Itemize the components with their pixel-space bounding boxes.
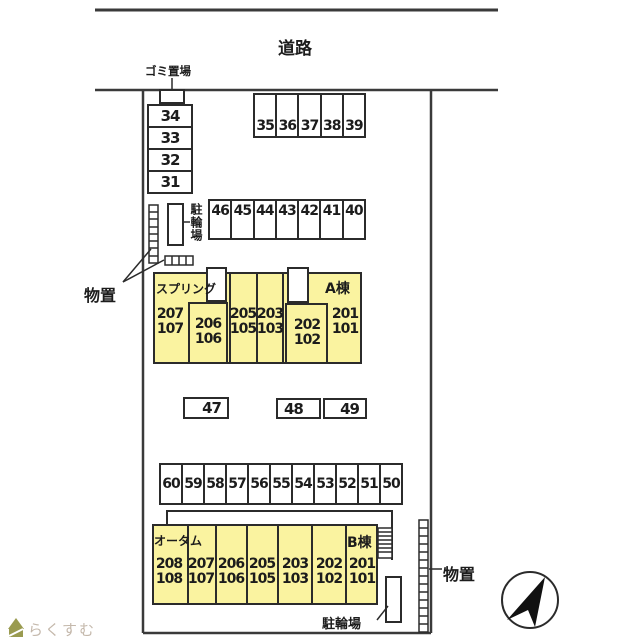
unit-lower: 103 (282, 572, 308, 587)
parking-row-46-40: 46 45 44 43 42 41 40 (208, 199, 366, 240)
building-a-name: スプリング (156, 280, 216, 297)
unit-upper: 201 (349, 557, 375, 572)
unit-lower: 102 (316, 572, 342, 587)
building-b-unit-205-105: 205 105 (244, 557, 280, 587)
building-a-unit-206-106: 206 106 (189, 317, 227, 347)
unit-upper: 205 (249, 557, 275, 572)
parking-space-42: 42 (297, 201, 319, 238)
compass-north-icon (502, 572, 558, 628)
parking-space-49: 49 (323, 398, 367, 419)
unit-upper: 208 (156, 557, 182, 572)
unit-upper: 206 (218, 557, 244, 572)
parking-space-52: 52 (335, 465, 357, 503)
storage-shed-right-icon (419, 520, 428, 632)
unit-upper: 202 (316, 557, 342, 572)
parking-space-46: 46 (210, 201, 230, 238)
parking-space-43: 43 (275, 201, 297, 238)
rakusumu-logo-text: らくすむ (28, 619, 96, 640)
building-b-tag: B棟 (347, 532, 372, 552)
bicycle-shed-bottom (386, 577, 401, 622)
unit-lower: 103 (257, 322, 283, 337)
parking-space-47: 47 (183, 397, 229, 419)
parking-space-55: 55 (269, 465, 291, 503)
parking-space-50: 50 (379, 465, 401, 503)
garbage-label: ゴミ置場 (145, 63, 191, 79)
storage-right-label: 物置 (443, 561, 475, 585)
unit-lower: 107 (188, 572, 214, 587)
parking-space-45: 45 (230, 201, 252, 238)
building-a-unit-201-101: 201 101 (326, 307, 364, 337)
parking-space-37: 37 (297, 95, 319, 136)
unit-upper: 207 (157, 307, 183, 322)
storage-shed-left-horizontal-icon (165, 256, 193, 265)
building-a-stairwell-2 (287, 267, 309, 303)
parking-space-44: 44 (253, 201, 275, 238)
unit-lower: 105 (249, 572, 275, 587)
parking-space-58: 58 (203, 465, 225, 503)
parking-stack-34-31: 34 33 32 31 (147, 104, 193, 194)
building-b-unit-202-102: 202 102 (311, 557, 347, 587)
parking-space-33: 33 (149, 126, 191, 148)
parking-space-38: 38 (320, 95, 342, 136)
storage-shed-left-vertical-icon (149, 205, 158, 263)
rakusumu-house-icon (8, 618, 24, 637)
parking-space-53: 53 (313, 465, 335, 503)
parking-space-54: 54 (291, 465, 313, 503)
parking-space-36: 36 (275, 95, 297, 136)
space-number: 49 (340, 400, 359, 418)
unit-lower: 101 (349, 572, 375, 587)
bicycle-shed-top (168, 204, 183, 245)
building-a-unit-203-103: 203 103 (251, 307, 289, 337)
space-number: 47 (202, 399, 221, 417)
unit-upper: 202 (294, 318, 320, 333)
unit-upper: 206 (195, 317, 221, 332)
building-b-stairs-icon (378, 528, 392, 558)
parking-space-31: 31 (149, 170, 191, 192)
building-b-unit-203-103: 203 103 (277, 557, 313, 587)
unit-upper: 201 (332, 307, 358, 322)
parking-space-57: 57 (225, 465, 247, 503)
bicycle-top-label: 駐輪場 (189, 203, 202, 251)
parking-space-60: 60 (161, 465, 181, 503)
parking-space-39: 39 (342, 95, 364, 136)
garbage-box (160, 90, 184, 103)
bicycle-bottom-leader (377, 606, 388, 620)
parking-space-35: 35 (255, 95, 275, 136)
storage-left-leader-1 (123, 249, 151, 282)
unit-lower: 106 (218, 572, 244, 587)
unit-upper: 203 (282, 557, 308, 572)
unit-lower: 106 (195, 332, 221, 347)
unit-lower: 107 (157, 322, 183, 337)
building-a-tag: A棟 (325, 278, 350, 298)
parking-space-48: 48 (276, 398, 321, 419)
building-a-unit-207-107: 207 107 (151, 307, 189, 337)
unit-upper: 203 (257, 307, 283, 322)
unit-lower: 101 (332, 322, 358, 337)
parking-space-41: 41 (319, 201, 341, 238)
parking-space-51: 51 (357, 465, 379, 503)
building-a-unit-202-102: 202 102 (288, 318, 326, 348)
parking-row-60-50: 60 59 58 57 56 55 54 53 52 51 50 (159, 463, 403, 505)
bicycle-bottom-label: 駐輪場 (322, 613, 361, 632)
road-label: 道路 (278, 34, 312, 59)
building-b-unit-208-108: 208 108 (151, 557, 187, 587)
building-b-unit-201-101: 201 101 (344, 557, 380, 587)
parking-space-34: 34 (149, 106, 191, 126)
storage-left-label: 物置 (84, 282, 116, 306)
parking-space-32: 32 (149, 148, 191, 170)
unit-upper: 207 (188, 557, 214, 572)
parking-space-40: 40 (342, 201, 364, 238)
unit-lower: 102 (294, 333, 320, 348)
building-b-name: オータム (154, 532, 202, 549)
site-plan: 道路 ゴミ置場 34 33 32 31 35 36 37 38 39 駐輪場 4… (0, 0, 640, 640)
parking-space-56: 56 (247, 465, 269, 503)
parking-row-35-39: 35 36 37 38 39 (253, 93, 366, 138)
unit-lower: 108 (156, 572, 182, 587)
space-number: 48 (284, 400, 303, 418)
parking-space-59: 59 (181, 465, 203, 503)
